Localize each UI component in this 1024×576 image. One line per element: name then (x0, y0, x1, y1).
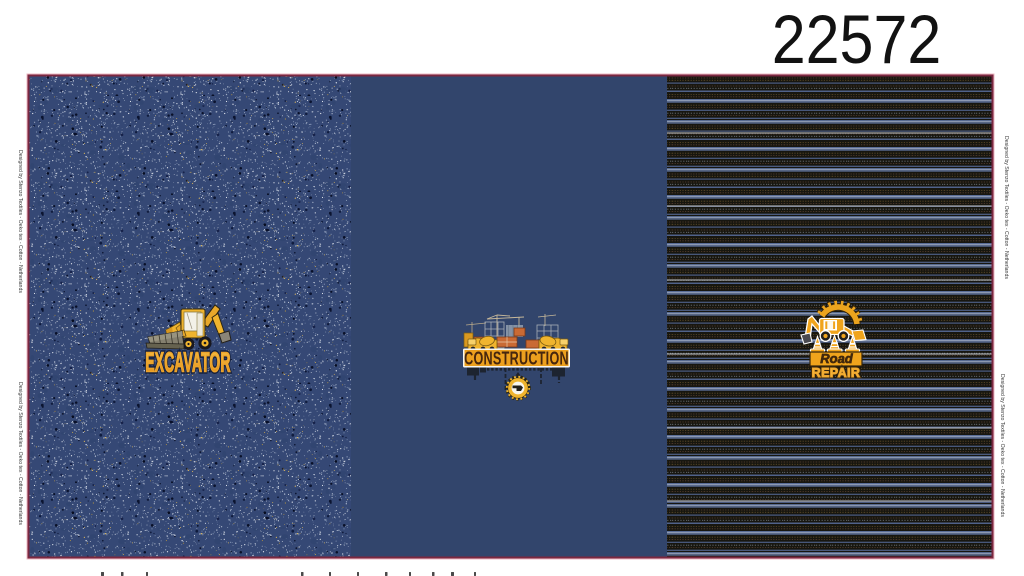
svg-text:Designed by Stenzo Textiles -: Designed by Stenzo Textiles - Oeko tex -… (1003, 136, 1009, 279)
svg-text:REPAIR: REPAIR (812, 366, 861, 380)
svg-text:Designed by Stenzo Textiles -: Designed by Stenzo Textiles - Oeko tex -… (17, 150, 23, 293)
svg-text:Designed by Stenzo Textiles -: Designed by Stenzo Textiles - Oeko tex -… (999, 374, 1005, 517)
svg-text:Road: Road (820, 351, 854, 366)
svg-text:EXCAVATOR: EXCAVATOR (145, 346, 230, 378)
svg-text:Designed by Stenzo Textiles -: Designed by Stenzo Textiles - Oeko tex -… (17, 382, 23, 525)
svg-text:CONSTRUCTION: CONSTRUCTION (464, 349, 569, 369)
svg-text:22572: 22572 (772, 0, 942, 77)
